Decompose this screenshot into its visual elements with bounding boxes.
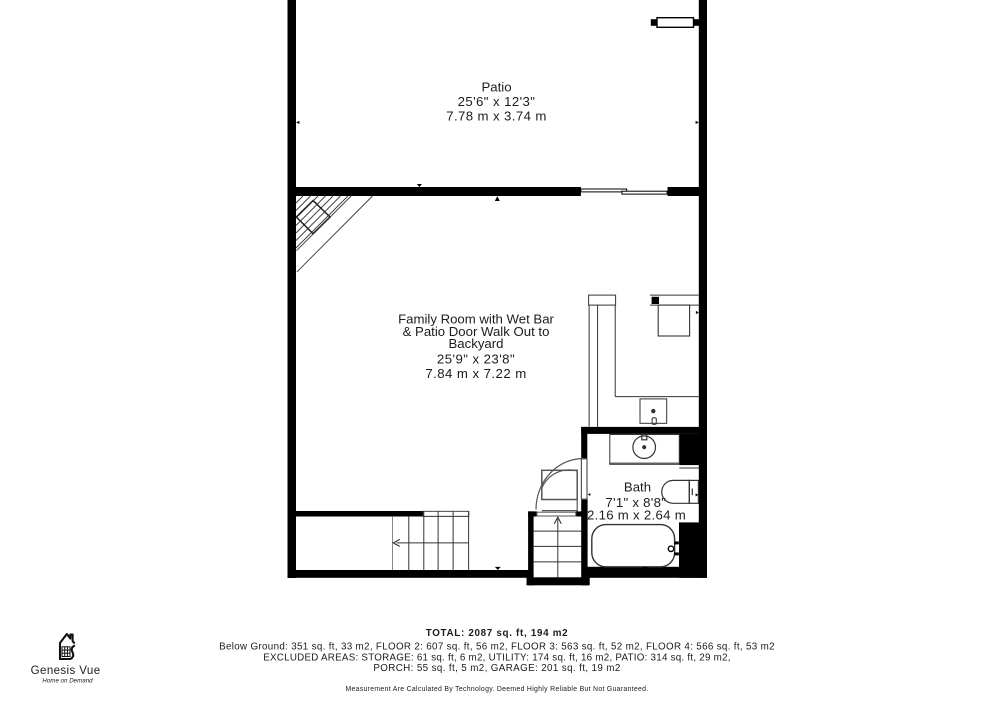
svg-text:Backyard: Backyard (449, 336, 504, 351)
svg-text:25'9" x 23'8": 25'9" x 23'8" (437, 352, 515, 367)
svg-text:7.78 m x 3.74 m: 7.78 m x 3.74 m (446, 109, 547, 124)
svg-text:Genesis Vue: Genesis Vue (31, 665, 101, 677)
svg-text:7.84 m x 7.22 m: 7.84 m x 7.22 m (425, 366, 526, 381)
svg-text:2.16 m x 2.64 m: 2.16 m x 2.64 m (587, 508, 686, 523)
svg-text:Home on Demand: Home on Demand (42, 678, 93, 685)
svg-text:PORCH: 55 sq. ft, 5 m2, GARAGE: PORCH: 55 sq. ft, 5 m2, GARAGE: 201 sq. … (373, 663, 620, 674)
svg-text:TOTAL: 2087 sq. ft, 194 m2: TOTAL: 2087 sq. ft, 194 m2 (426, 628, 569, 639)
svg-text:Below Ground: 351 sq. ft, 33 m: Below Ground: 351 sq. ft, 33 m2, FLOOR 2… (219, 642, 775, 653)
svg-text:25'6" x 12'3": 25'6" x 12'3" (458, 94, 536, 109)
svg-text:Measurement Are Calculated By: Measurement Are Calculated By Technology… (345, 686, 648, 693)
svg-text:Patio: Patio (481, 80, 511, 95)
svg-text:EXCLUDED AREAS: STORAGE: 61 sq: EXCLUDED AREAS: STORAGE: 61 sq. ft, 6 m2… (263, 653, 731, 664)
svg-text:Bath: Bath (624, 480, 651, 495)
